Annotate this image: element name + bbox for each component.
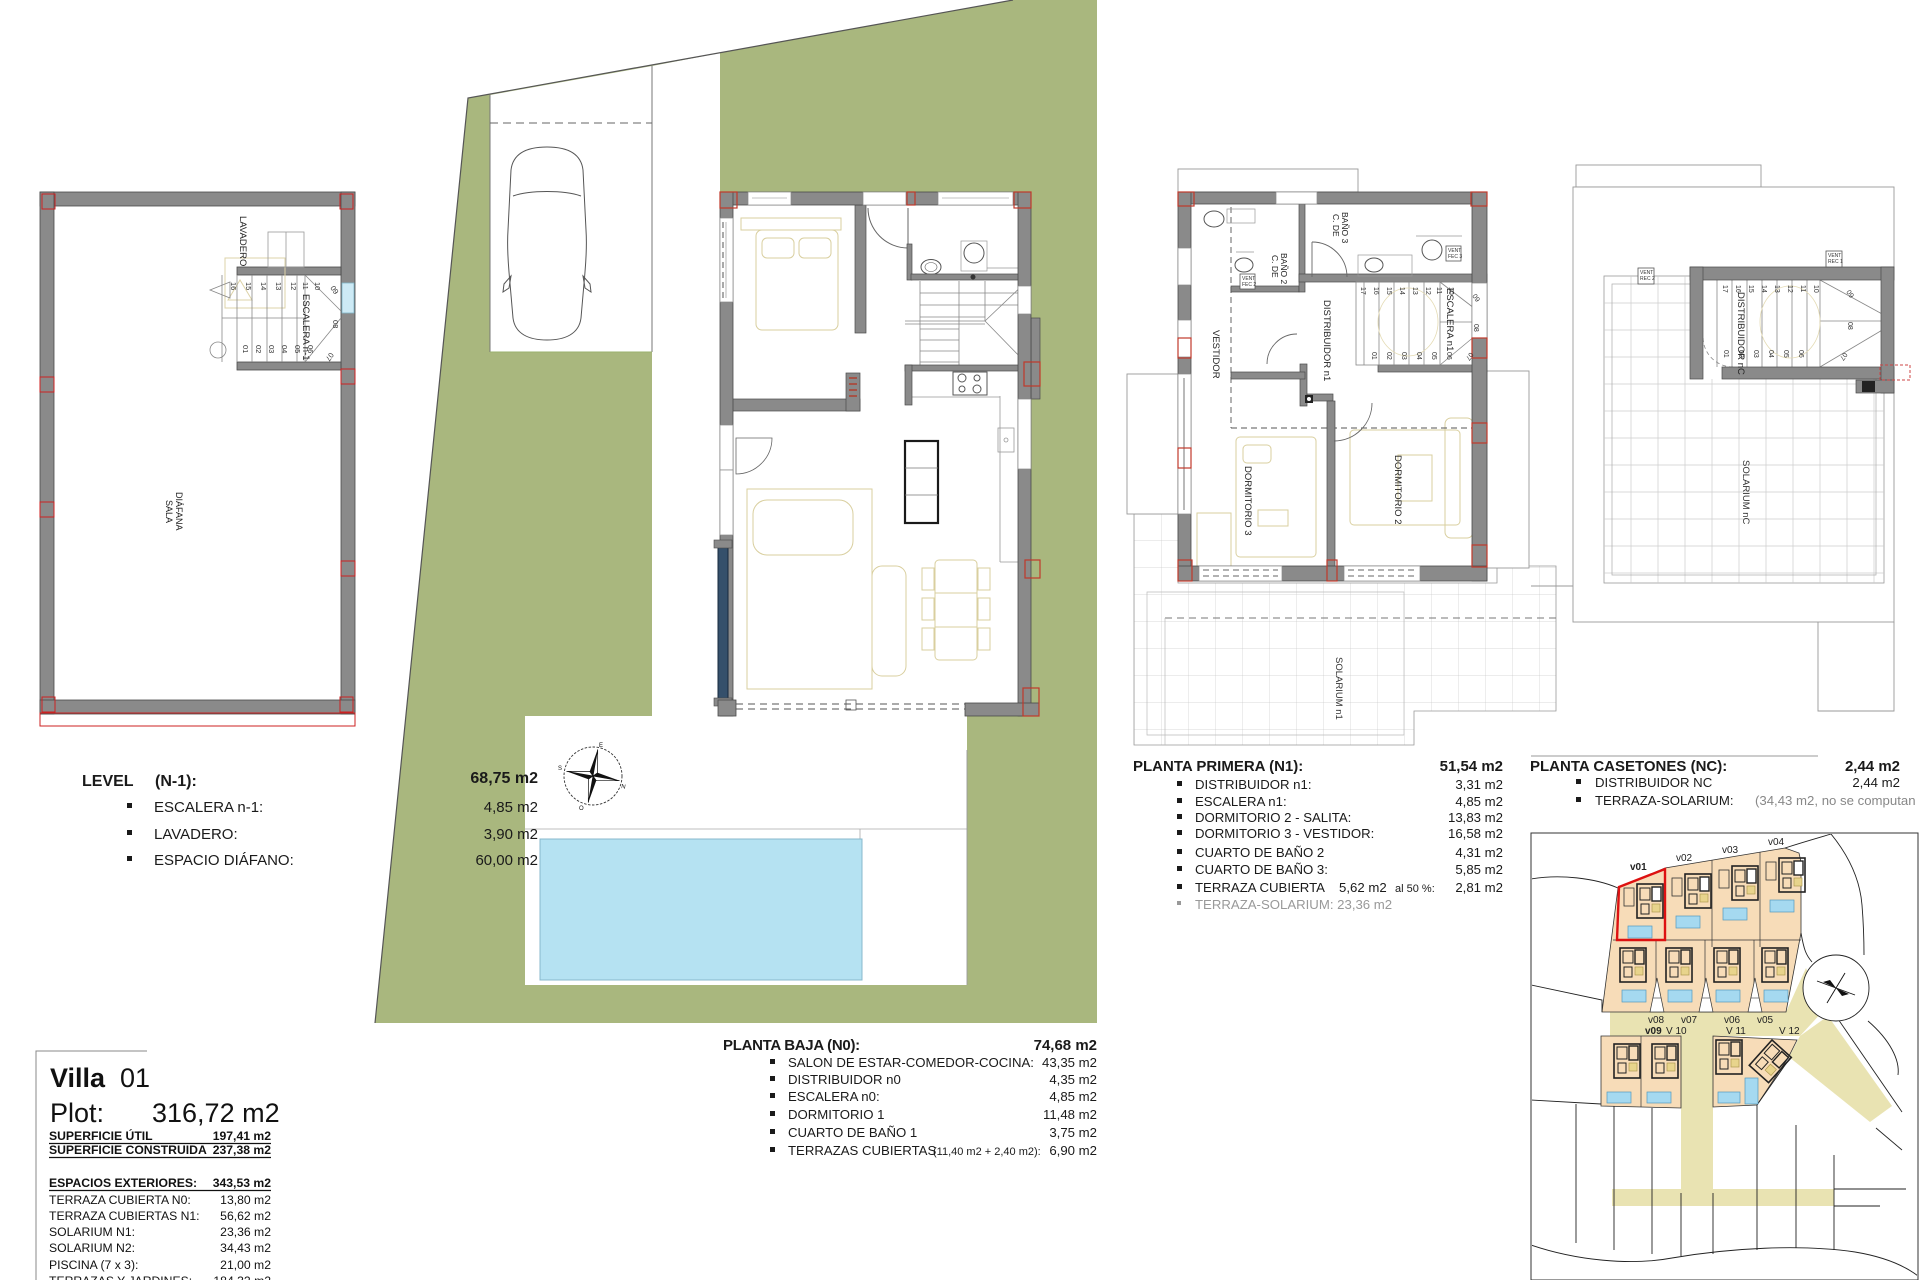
svg-text:15: 15 [1385, 287, 1392, 295]
svg-text:TERRAZA CUBIERTA: TERRAZA CUBIERTA [1195, 880, 1325, 895]
svg-text:13: 13 [1773, 285, 1780, 293]
svg-text:04: 04 [280, 345, 289, 353]
svg-text:v01: v01 [1630, 862, 1647, 873]
svg-text:TERRAZAS Y JARDINES:: TERRAZAS Y JARDINES: [49, 1274, 192, 1280]
svg-text:3,90 m2: 3,90 m2 [484, 826, 538, 843]
svg-text:05: 05 [1430, 352, 1437, 360]
svg-text:16: 16 [1372, 287, 1379, 295]
svg-text:12: 12 [1424, 287, 1431, 295]
svg-text:3,75 m2: 3,75 m2 [1049, 1125, 1097, 1140]
svg-text:6,90 m2: 6,90 m2 [1049, 1143, 1097, 1158]
svg-text:11: 11 [1799, 285, 1806, 292]
svg-text:34,43 m2: 34,43 m2 [220, 1241, 271, 1255]
svg-text:(11,40 m2 + 2,40 m2):: (11,40 m2 + 2,40 m2): [933, 1146, 1041, 1158]
svg-text:SOLARIUM N2:: SOLARIUM N2: [49, 1241, 135, 1255]
svg-text:15: 15 [244, 282, 253, 290]
svg-text:23,36 m2: 23,36 m2 [220, 1225, 271, 1239]
svg-text:4,31 m2: 4,31 m2 [1455, 845, 1503, 860]
svg-text:PLANTA PRIMERA (N1):: PLANTA PRIMERA (N1): [1133, 758, 1303, 775]
svg-text:06: 06 [1797, 350, 1804, 358]
svg-text:03: 03 [1752, 350, 1759, 358]
svg-text:DORMITORIO 2 - SALITA:: DORMITORIO 2 - SALITA: [1195, 810, 1351, 825]
svg-text:FEC 3: FEC 3 [1448, 254, 1462, 260]
svg-text:2,81 m2: 2,81 m2 [1455, 880, 1503, 895]
svg-text:11,48 m2: 11,48 m2 [1043, 1107, 1097, 1122]
svg-text:2,44 m2: 2,44 m2 [1845, 758, 1900, 775]
svg-text:SUPERFICIE ÚTIL: SUPERFICIE ÚTIL [49, 1128, 153, 1143]
svg-text:REC 1: REC 1 [1828, 259, 1843, 265]
svg-text:DISTRIBUIDOR NC: DISTRIBUIDOR NC [1595, 775, 1713, 790]
svg-text:56,62 m2: 56,62 m2 [220, 1209, 271, 1223]
svg-text:v09: v09 [1645, 1026, 1662, 1037]
svg-text:5,85 m2: 5,85 m2 [1455, 862, 1503, 877]
svg-text:13,83 m2: 13,83 m2 [1448, 810, 1503, 825]
svg-text:60,00 m2: 60,00 m2 [475, 852, 538, 869]
svg-text:07: 07 [324, 351, 336, 363]
svg-text:PISCINA (7 x 3):: PISCINA (7 x 3): [49, 1258, 138, 1272]
svg-text:SOLARIUM n1: SOLARIUM n1 [1333, 657, 1344, 720]
svg-text:4,85 m2: 4,85 m2 [1049, 1089, 1097, 1104]
svg-text:13: 13 [274, 282, 283, 290]
svg-text:DORMITORIO 1: DORMITORIO 1 [788, 1107, 884, 1122]
svg-text:Villa: Villa [50, 1063, 106, 1093]
svg-text:ESCALERA n-1:: ESCALERA n-1: [154, 799, 263, 816]
svg-text:68,75 m2: 68,75 m2 [470, 770, 538, 787]
svg-text:12: 12 [289, 282, 298, 290]
svg-text:(34,43 m2, no se computan: (34,43 m2, no se computan [1755, 793, 1916, 808]
svg-text:ESPACIO DIÁFANO:: ESPACIO DIÁFANO: [154, 852, 294, 869]
svg-text:TERRAZA-SOLARIUM: 23,36 m2: TERRAZA-SOLARIUM: 23,36 m2 [1195, 897, 1392, 912]
svg-text:CUARTO DE BAÑO 1: CUARTO DE BAÑO 1 [788, 1125, 917, 1140]
svg-text:Plot:: Plot: [50, 1098, 104, 1128]
svg-text:FEC 2: FEC 2 [1242, 282, 1256, 288]
svg-text:O: O [579, 806, 584, 812]
svg-text:10: 10 [1447, 287, 1454, 295]
svg-text:al 50 %:: al 50 %: [1395, 883, 1435, 895]
svg-text:DISTRIBUIDOR n1:: DISTRIBUIDOR n1: [1195, 777, 1312, 792]
svg-text:2,44 m2: 2,44 m2 [1852, 775, 1900, 790]
svg-text:v02: v02 [1676, 853, 1693, 864]
svg-text:DIÁFANA: DIÁFANA [174, 492, 184, 531]
svg-text:09: 09 [328, 284, 340, 296]
svg-text:4,35 m2: 4,35 m2 [1049, 1072, 1097, 1087]
svg-text:v07: v07 [1681, 1015, 1698, 1026]
svg-text:V 12: V 12 [1779, 1026, 1800, 1037]
svg-text:06: 06 [1445, 352, 1452, 360]
svg-text:C. DE: C. DE [1270, 255, 1280, 278]
svg-text:03: 03 [267, 345, 276, 353]
svg-text:VESTIDOR: VESTIDOR [1210, 330, 1221, 379]
svg-text:v06: v06 [1724, 1015, 1741, 1026]
svg-text:v03: v03 [1722, 845, 1739, 856]
svg-text:S: S [558, 766, 562, 772]
svg-text:16: 16 [229, 282, 238, 290]
svg-text:01: 01 [241, 345, 250, 353]
svg-text:51,54 m2: 51,54 m2 [1440, 758, 1503, 775]
svg-text:SALA: SALA [164, 500, 174, 523]
svg-text:(N-1):: (N-1): [155, 773, 197, 790]
svg-text:LEVEL: LEVEL [82, 773, 134, 790]
svg-text:01: 01 [120, 1063, 150, 1093]
svg-text:02: 02 [254, 345, 263, 353]
svg-text:LAVADERO:: LAVADERO: [154, 826, 238, 843]
svg-text:16,58 m2: 16,58 m2 [1448, 826, 1503, 841]
svg-text:SALON DE ESTAR-COMEDOR-COCINA:: SALON DE ESTAR-COMEDOR-COCINA: [788, 1055, 1034, 1070]
svg-text:v08: v08 [1648, 1015, 1665, 1026]
svg-text:74,68 m2: 74,68 m2 [1034, 1037, 1097, 1054]
svg-text:04: 04 [1415, 352, 1422, 360]
svg-text:PLANTA CASETONES (NC):: PLANTA CASETONES (NC): [1530, 758, 1727, 775]
svg-text:13: 13 [1411, 287, 1418, 295]
svg-text:TERRAZA-SOLARIUM:: TERRAZA-SOLARIUM: [1595, 793, 1733, 808]
svg-text:14: 14 [259, 282, 268, 290]
svg-text:08: 08 [1472, 324, 1479, 332]
svg-text:5,62 m2: 5,62 m2 [1339, 880, 1387, 895]
svg-text:05: 05 [1782, 350, 1789, 358]
svg-text:13,80 m2: 13,80 m2 [220, 1193, 271, 1207]
svg-text:v04: v04 [1768, 837, 1785, 848]
svg-text:CUARTO DE BAÑO 3:: CUARTO DE BAÑO 3: [1195, 862, 1328, 877]
svg-text:TERRAZA CUBIERTAS N1:: TERRAZA CUBIERTAS N1: [49, 1209, 200, 1223]
svg-text:184,32 m2: 184,32 m2 [213, 1274, 271, 1280]
svg-text:06: 06 [306, 345, 315, 353]
svg-text:12: 12 [1786, 285, 1793, 293]
svg-text:CUARTO DE BAÑO 2: CUARTO DE BAÑO 2 [1195, 845, 1324, 860]
svg-text:3,31 m2: 3,31 m2 [1455, 777, 1503, 792]
svg-text:DISTRIBUIDOR n1: DISTRIBUIDOR n1 [1321, 300, 1332, 381]
svg-text:v05: v05 [1757, 1015, 1774, 1026]
svg-text:02: 02 [1385, 352, 1392, 360]
svg-text:01: 01 [1722, 350, 1729, 358]
svg-text:DORMITORIO 2: DORMITORIO 2 [1392, 455, 1403, 525]
svg-text:ESCALERA n1:: ESCALERA n1: [1195, 794, 1287, 809]
svg-text:PLANTA BAJA (N0):: PLANTA BAJA (N0): [723, 1037, 860, 1054]
svg-text:4,85 m2: 4,85 m2 [484, 799, 538, 816]
svg-text:V 11: V 11 [1726, 1026, 1746, 1037]
svg-text:10: 10 [313, 282, 322, 290]
svg-text:4,85 m2: 4,85 m2 [1455, 794, 1503, 809]
svg-text:11: 11 [301, 282, 310, 290]
svg-text:237,38 m2: 237,38 m2 [213, 1143, 271, 1157]
svg-text:343,53 m2: 343,53 m2 [213, 1176, 271, 1190]
svg-text:08: 08 [331, 320, 340, 328]
svg-text:REC 2: REC 2 [1640, 276, 1655, 282]
svg-text:05: 05 [293, 345, 302, 353]
svg-text:DISTRIBUIDOR nC: DISTRIBUIDOR nC [1735, 292, 1746, 375]
svg-text:SOLARIUM nC: SOLARIUM nC [1740, 460, 1751, 525]
svg-text:08: 08 [1846, 322, 1853, 330]
svg-text:316,72 m2: 316,72 m2 [152, 1098, 280, 1128]
svg-text:SUPERFICIE CONSTRUIDA: SUPERFICIE CONSTRUIDA [49, 1143, 207, 1157]
svg-text:ESCALERA n0:: ESCALERA n0: [788, 1089, 880, 1104]
svg-text:197,41 m2: 197,41 m2 [213, 1129, 271, 1143]
svg-text:SOLARIUM N1:: SOLARIUM N1: [49, 1225, 135, 1239]
svg-text:C. DE: C. DE [1331, 214, 1341, 237]
svg-text:04: 04 [1767, 350, 1774, 358]
svg-text:21,00 m2: 21,00 m2 [220, 1258, 271, 1272]
svg-text:DORMITORIO 3: DORMITORIO 3 [1242, 466, 1253, 536]
svg-text:01: 01 [1370, 352, 1377, 360]
svg-text:17: 17 [1359, 287, 1366, 295]
svg-text:BAÑO 3: BAÑO 3 [1340, 212, 1350, 243]
svg-text:DISTRIBUIDOR n0: DISTRIBUIDOR n0 [788, 1072, 901, 1087]
svg-text:V 10: V 10 [1666, 1026, 1687, 1037]
svg-text:11: 11 [1435, 287, 1442, 294]
svg-text:03: 03 [1400, 352, 1407, 360]
svg-text:BAÑO 2: BAÑO 2 [1279, 253, 1289, 284]
svg-text:14: 14 [1760, 285, 1767, 293]
svg-text:15: 15 [1747, 285, 1754, 293]
svg-text:ESCALERA n1: ESCALERA n1 [1444, 288, 1455, 351]
svg-text:17: 17 [1721, 285, 1728, 293]
svg-text:DORMITORIO 3 - VESTIDOR:: DORMITORIO 3 - VESTIDOR: [1195, 826, 1374, 841]
svg-text:10: 10 [1812, 285, 1819, 293]
svg-text:14: 14 [1398, 287, 1405, 295]
svg-text:LAVADERO: LAVADERO [237, 216, 248, 266]
svg-text:E: E [599, 743, 603, 749]
svg-text:TERRAZAS CUBIERTAS: TERRAZAS CUBIERTAS [788, 1143, 936, 1158]
svg-text:TERRAZA CUBIERTA N0:: TERRAZA CUBIERTA N0: [49, 1193, 191, 1207]
svg-text:ESPACIOS EXTERIORES:: ESPACIOS EXTERIORES: [49, 1176, 197, 1190]
svg-text:43,35 m2: 43,35 m2 [1042, 1055, 1097, 1070]
